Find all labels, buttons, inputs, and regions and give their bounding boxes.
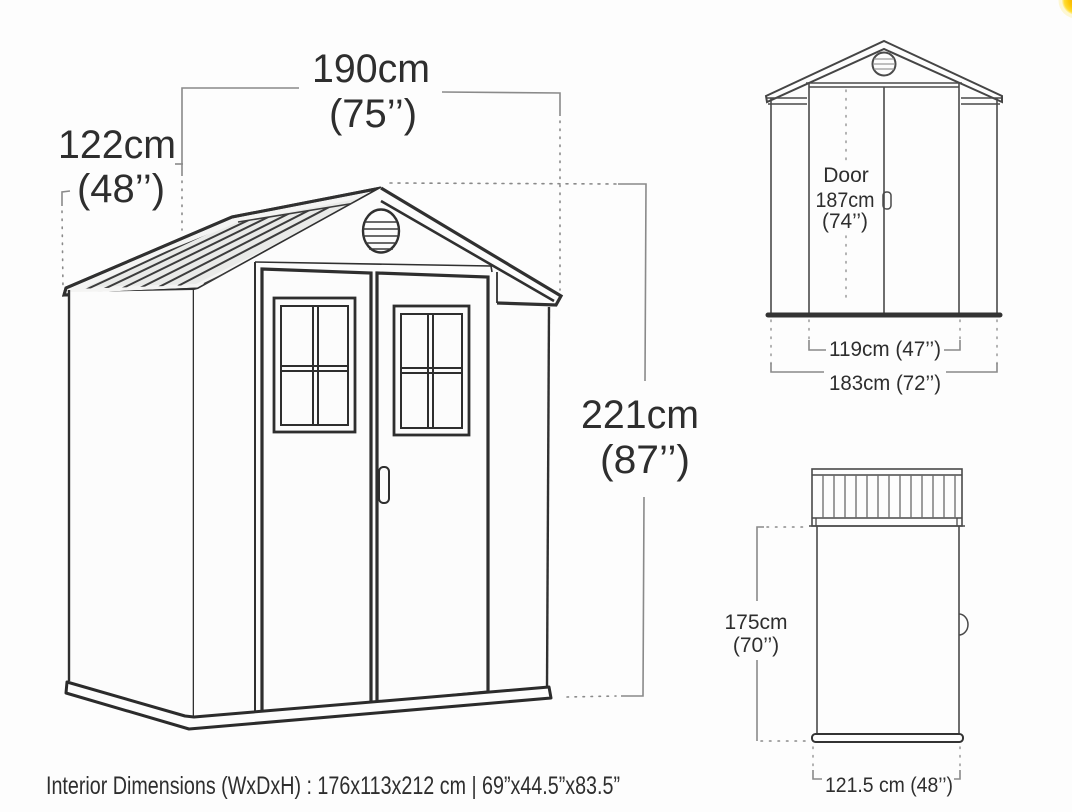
svg-text:(48’’): (48’’) <box>77 167 165 211</box>
svg-text:187cm: 187cm <box>816 189 875 212</box>
svg-text:221cm: 221cm <box>581 393 699 437</box>
svg-text:122cm: 122cm <box>58 123 176 167</box>
svg-text:190cm: 190cm <box>312 47 430 91</box>
svg-text:Interior Dimensions (WxDxH) :: Interior Dimensions (WxDxH) : 176x113x21… <box>46 772 620 800</box>
svg-text:183cm (72’’): 183cm (72’’) <box>829 372 941 395</box>
svg-text:Door: Door <box>823 164 869 187</box>
svg-text:121.5 cm (48’’): 121.5 cm (48’’) <box>825 774 953 797</box>
svg-text:(75’’): (75’’) <box>329 92 417 136</box>
svg-text:175cm: 175cm <box>724 611 787 634</box>
svg-text:119cm (47’’): 119cm (47’’) <box>829 338 941 361</box>
svg-text:(74’’): (74’’) <box>822 210 868 233</box>
svg-text:(70’’): (70’’) <box>733 634 779 657</box>
svg-text:(87’’): (87’’) <box>600 438 690 482</box>
